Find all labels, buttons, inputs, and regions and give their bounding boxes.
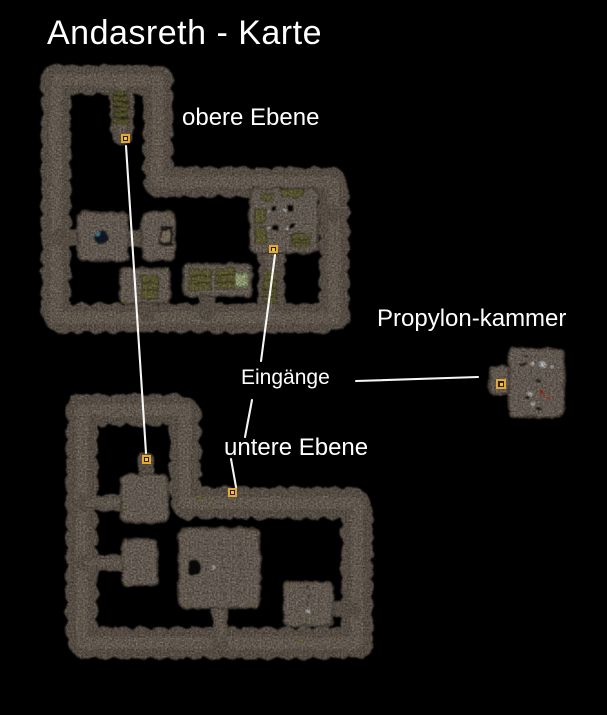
page-title: Andasreth - Karte <box>47 14 322 53</box>
label-entrances: Eingänge <box>241 366 330 390</box>
map-page: Andasreth - Karte obere Ebene Propylon-k… <box>0 0 607 715</box>
entrance-marker-upper-south <box>269 245 278 253</box>
label-lower-level: untere Ebene <box>224 434 368 462</box>
entrance-marker-lower-west <box>142 455 151 464</box>
entrance-marker-lower-shelf <box>228 488 237 497</box>
entrance-marker-propylon <box>496 379 506 389</box>
label-upper-level: obere Ebene <box>182 104 319 132</box>
label-propylon-chamber: Propylon-kammer <box>377 305 566 333</box>
entrance-marker-upper-north <box>121 134 130 143</box>
